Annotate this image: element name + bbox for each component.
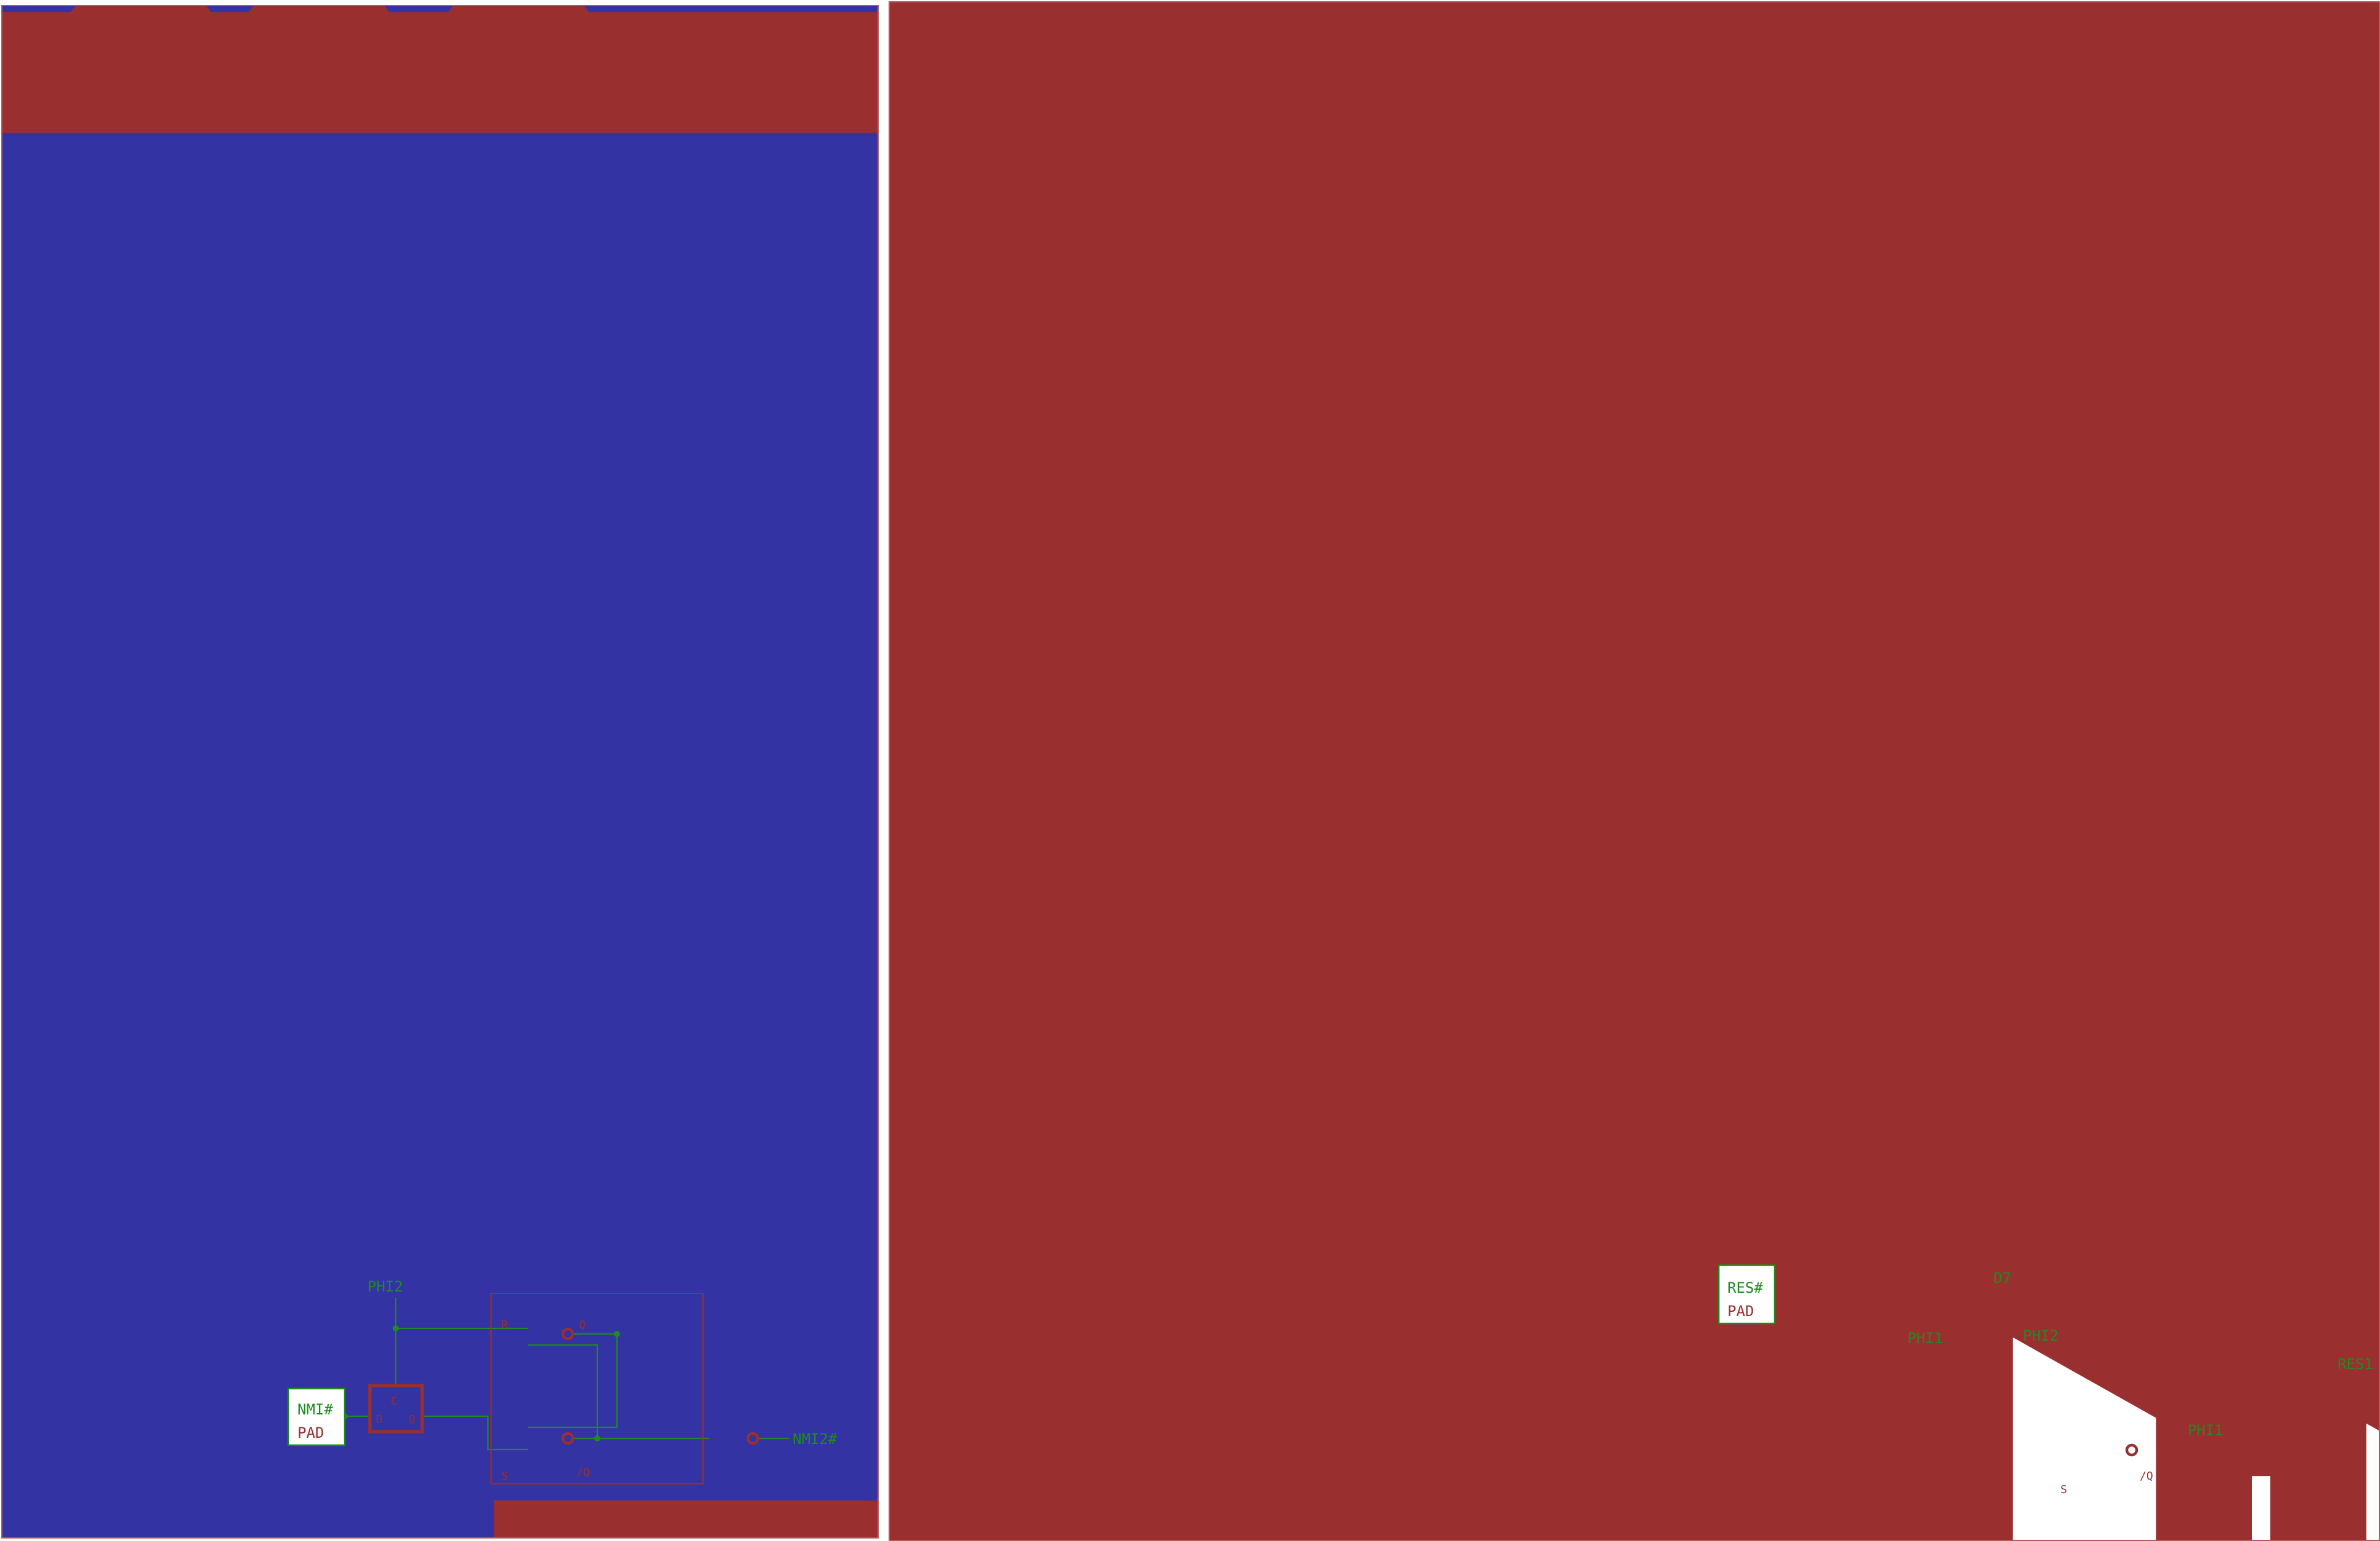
latch-d: D bbox=[2193, 1358, 2200, 1371]
latch-q: Q bbox=[2221, 1358, 2228, 1371]
rs-s: S bbox=[2060, 1483, 2067, 1496]
panel-nmi: 3a) NMI# NMI# PAD NMI2# PHI2 bbox=[1, 5, 879, 1539]
rs-r: R bbox=[2060, 1330, 2067, 1343]
pad-label: PAD bbox=[297, 1424, 324, 1441]
gate-array bbox=[1965, 1255, 2379, 1540]
signal-phi1: PHI1 bbox=[2188, 1422, 2223, 1439]
rs-r: R bbox=[501, 1319, 508, 1331]
rs-q: Q bbox=[2142, 1344, 2149, 1357]
ic74126-label: 74126 bbox=[1905, 1229, 1949, 1246]
pad-name-label: NMI# bbox=[297, 1401, 333, 1418]
signal-nmi2: NMI2# bbox=[793, 1430, 838, 1448]
panel-res: 3b) RES# bbox=[889, 1, 2380, 1541]
rs-s: S bbox=[501, 1470, 508, 1483]
latch-q: Q bbox=[409, 1413, 415, 1426]
rs-qbar: /Q bbox=[2140, 1470, 2153, 1483]
signal-phi2: PHI2 bbox=[2023, 1327, 2059, 1344]
rs-qbar: /Q bbox=[576, 1466, 590, 1479]
latch-c: C bbox=[391, 1395, 398, 1408]
signal-res1: RES1 bbox=[2338, 1355, 2373, 1373]
tenv-detect-label: 10V detect bbox=[1852, 1332, 1867, 1413]
pad-name-label: RES# bbox=[1727, 1279, 1763, 1296]
res-stage-flipflop-level: R Q S /Q D Q C RES# PAD 10V detect 74126… bbox=[890, 1216, 2379, 1540]
latch-c: C bbox=[2207, 1373, 2213, 1386]
signal-phi1: PHI1 bbox=[1907, 1330, 1943, 1347]
rs-q: Q bbox=[579, 1319, 586, 1331]
signal-d7: D7 bbox=[1993, 1269, 2011, 1287]
latch-d: D bbox=[376, 1413, 383, 1426]
signal-phi2: PHI2 bbox=[367, 1278, 403, 1295]
pad-label: PAD bbox=[1727, 1303, 1754, 1320]
